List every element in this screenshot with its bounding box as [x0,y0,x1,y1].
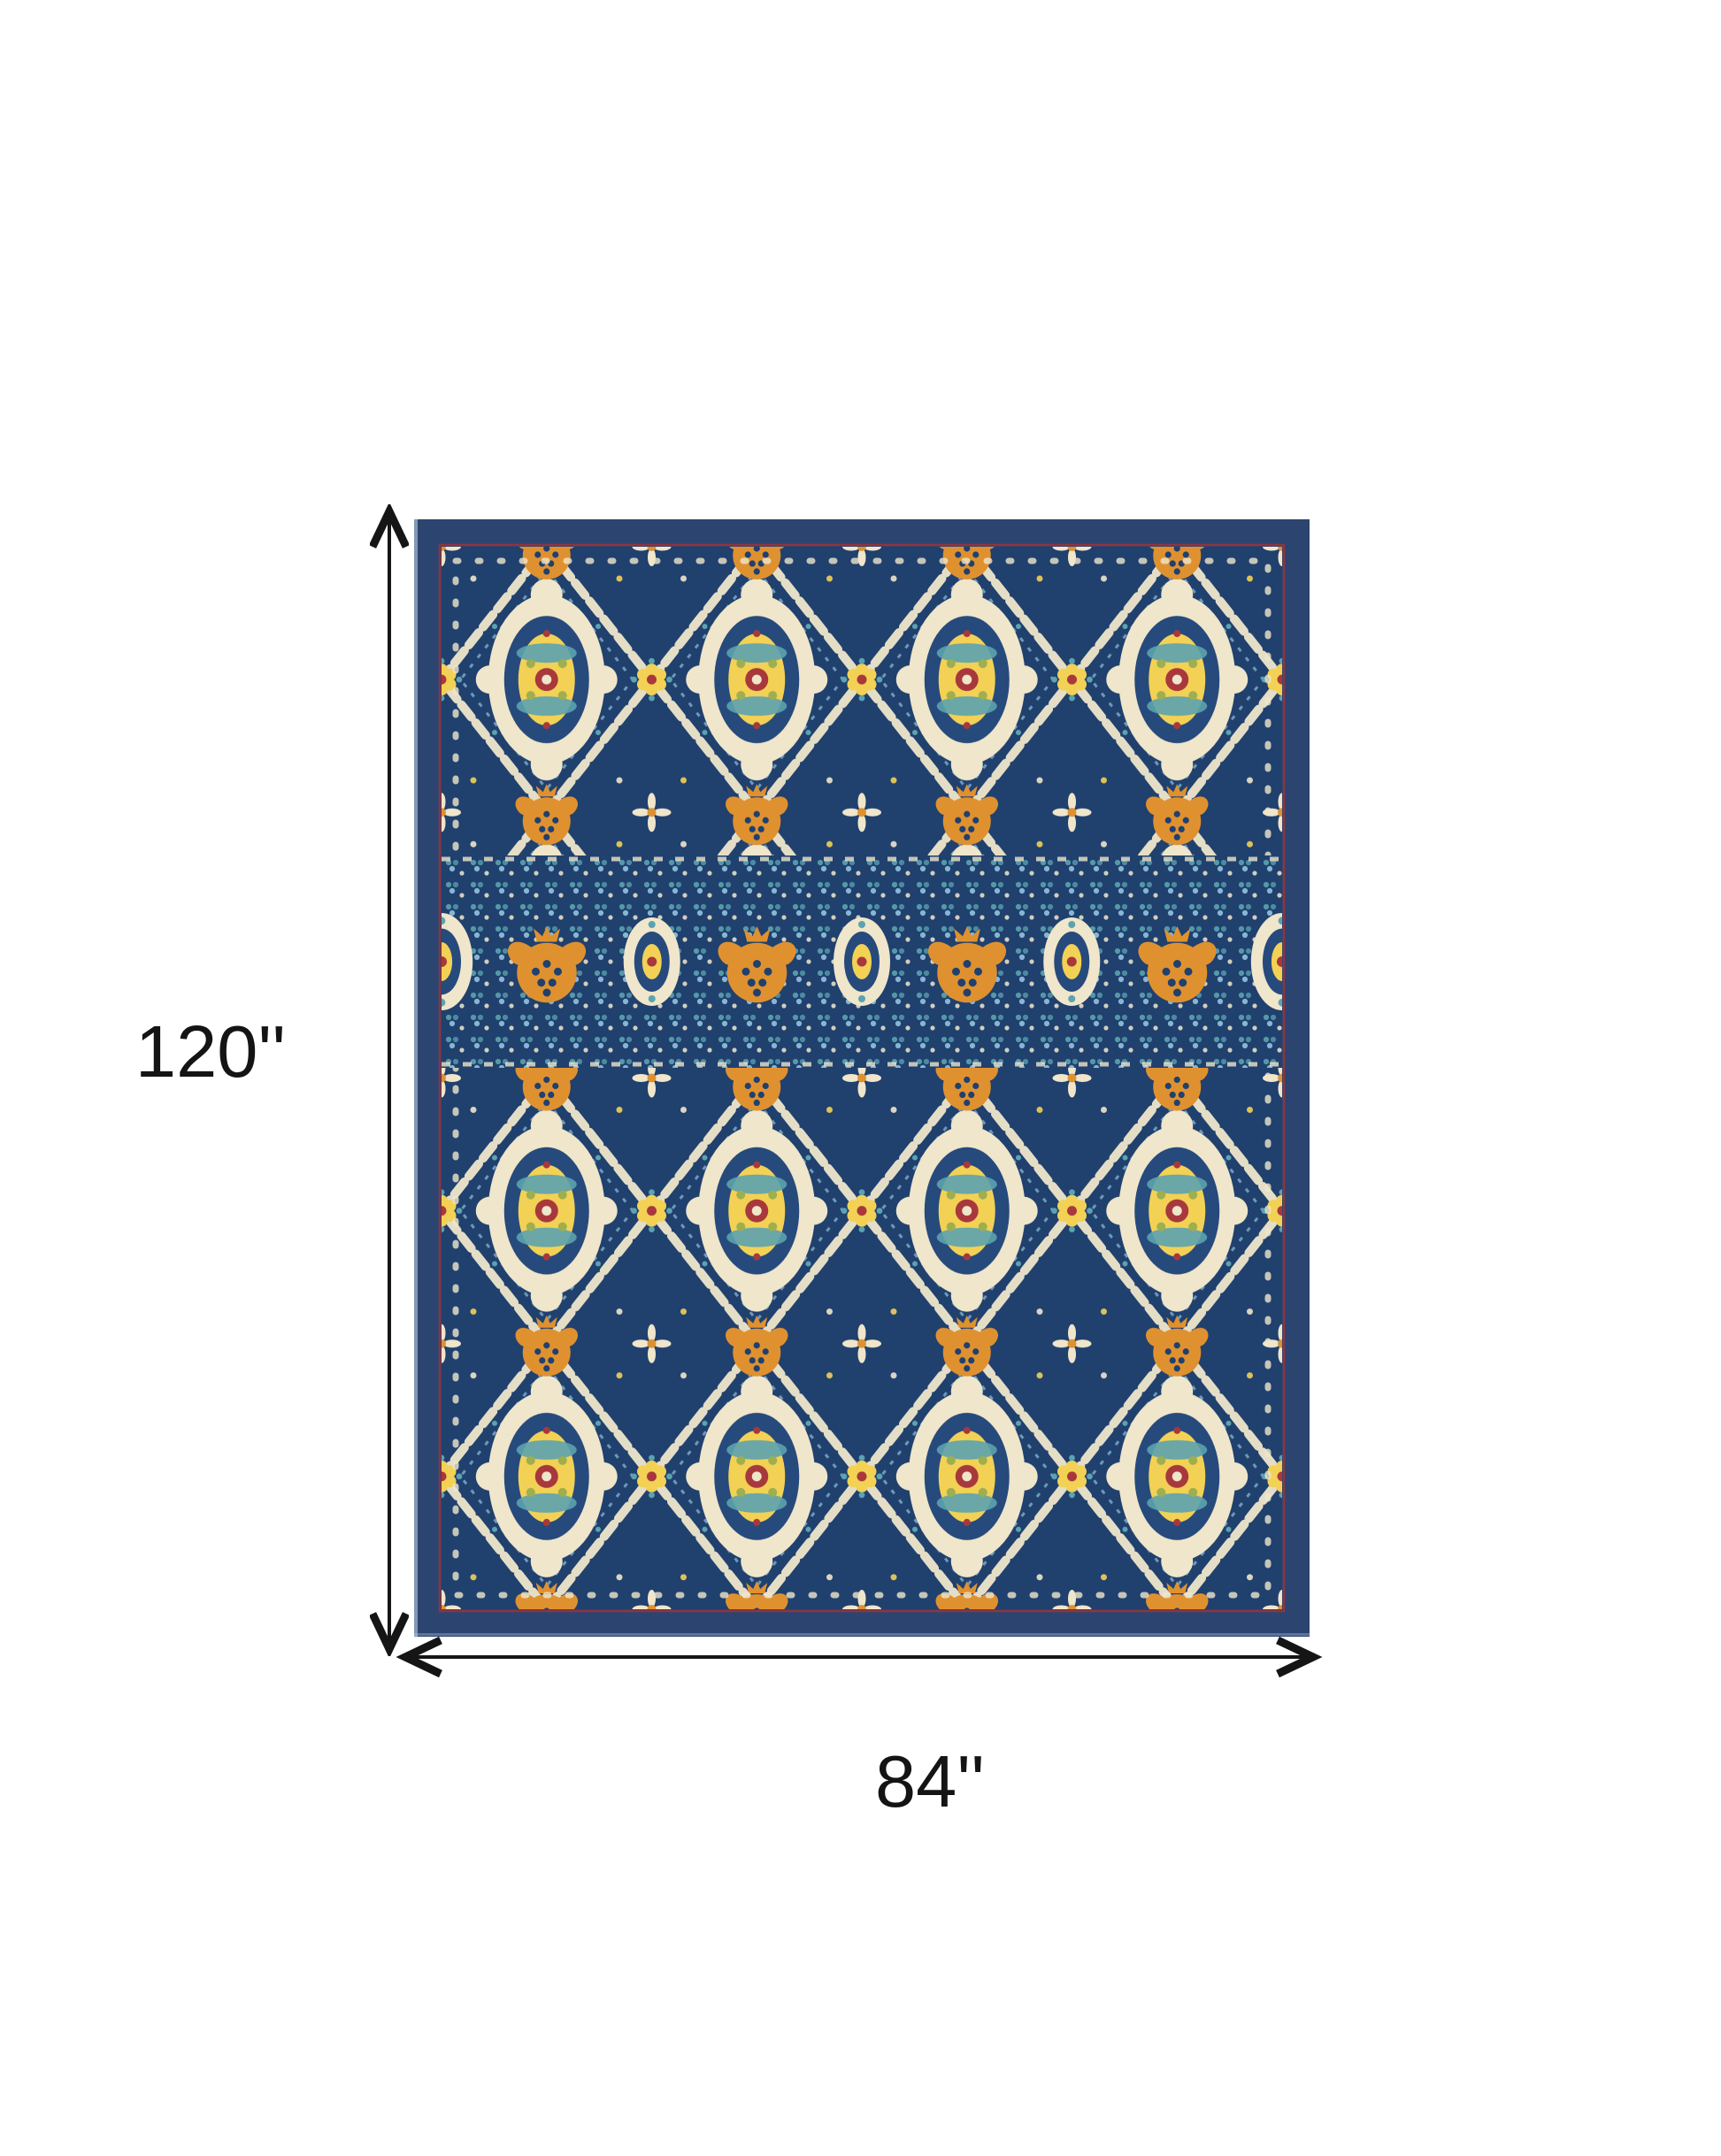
rug-image-svg [414,519,1310,1637]
rug-dotted-band [414,855,1310,1068]
product-dimension-diagram: 120'' 84'' [0,0,1721,2156]
height-dimension-label: 120'' [104,1015,317,1088]
rug-product-image [414,519,1310,1637]
width-dimension-label: 84'' [824,1745,1036,1818]
width-dimension-arrow [395,1636,1324,1678]
height-dimension-arrow [370,504,409,1656]
rug-field-pattern [442,547,1282,1609]
rug-edge-highlight-left [414,519,418,1637]
